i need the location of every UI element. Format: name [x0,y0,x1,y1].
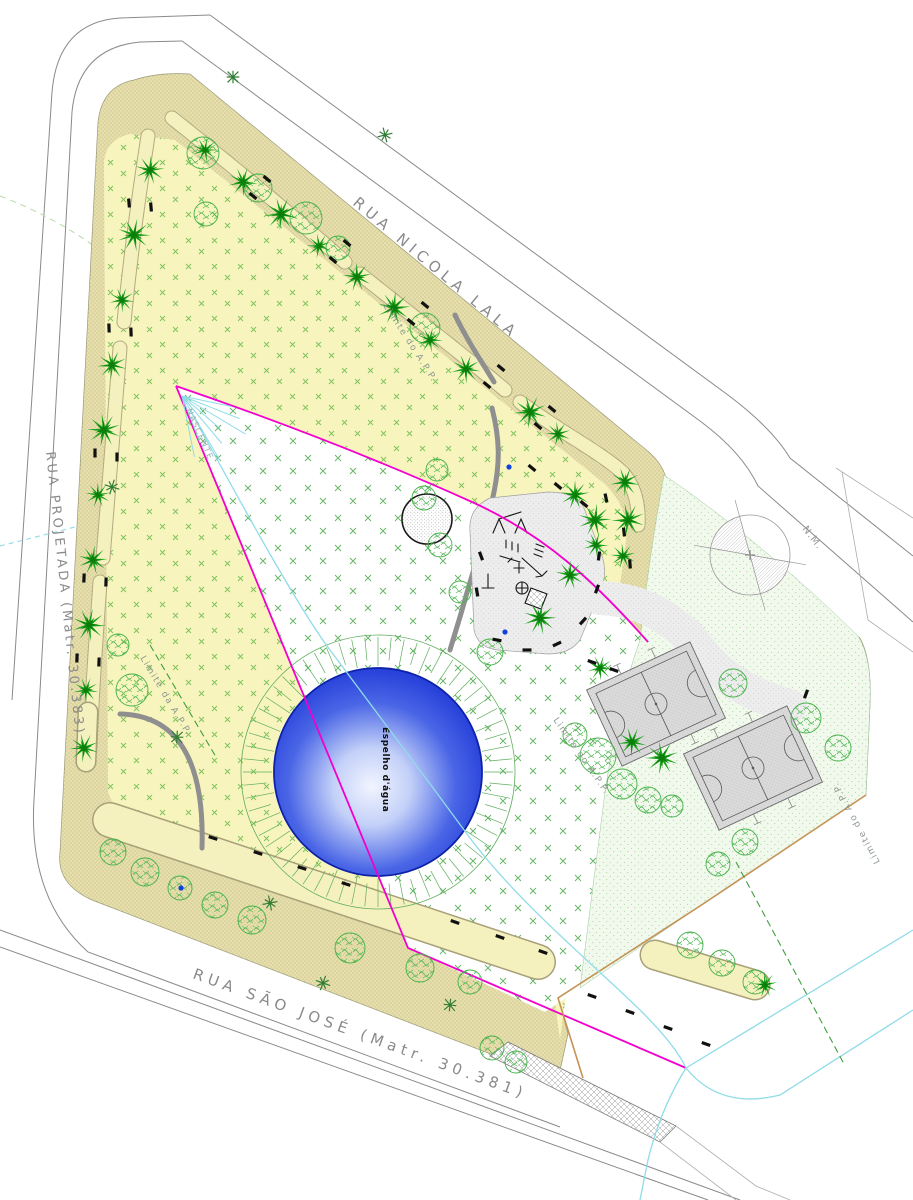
tree-icon [100,839,126,865]
fountain-dot-icon [506,464,511,469]
tree-icon [458,970,482,994]
tree-icon [107,634,129,656]
bench-icon [115,453,118,462]
lot-line-2 [842,472,913,652]
tree-icon [238,906,266,934]
tree-icon [326,236,350,260]
tree-icon [428,533,452,557]
bare-tree-icon [376,126,393,143]
bench-icon [93,449,96,458]
tree-icon [677,932,703,958]
magnetic-north-label: N.M. [800,524,825,552]
bench-icon [104,577,108,586]
tree-icon [607,769,637,799]
tree-icon [131,858,159,886]
tree-icon [661,795,683,817]
bench-icon [97,657,101,666]
tree-icon [406,954,434,982]
bench-icon [701,1041,711,1047]
tree-icon [194,202,218,226]
tree-icon [635,787,661,813]
bare-tree-icon [227,71,240,84]
tree-icon [477,639,503,665]
tree-icon [116,674,148,706]
bench-icon [587,993,597,999]
tree-icon [290,202,322,234]
site-plan-drawing: Espelho d'água N.M. RUA NICOLA LALA RUA [0,0,913,1200]
tree-icon [202,892,228,918]
bench-icon [628,559,632,568]
tree-icon [706,852,730,876]
tree-icon [709,950,735,976]
tree-icon [732,829,758,855]
bench-icon [625,1009,635,1015]
fountain-dot-icon [502,629,507,634]
tree-icon [426,459,448,481]
tree-icon [505,1051,527,1073]
tree-icon [412,486,436,510]
tree-icon [449,581,471,603]
bench-icon [107,323,111,332]
tree-icon [335,933,365,963]
lot-line-1 [836,468,913,518]
drainage-crosshatch-band [490,1042,790,1200]
bench-icon [663,1025,673,1031]
fountain-dot-icon [178,885,183,890]
water-mirror-label: Espelho d'água [380,727,390,812]
tree-icon [825,735,851,761]
bench-icon [523,648,532,651]
bench-icon [82,573,86,582]
tree-icon [480,1036,504,1060]
tree-icon [791,703,821,733]
bench-icon [129,327,133,336]
tree-icon [719,669,747,697]
